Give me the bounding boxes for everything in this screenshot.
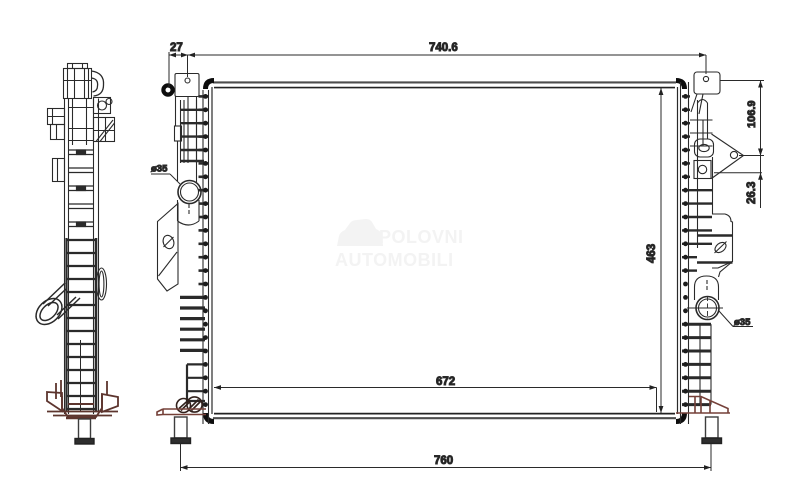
svg-text:ø35: ø35 <box>734 317 751 328</box>
svg-text:ø35: ø35 <box>151 164 168 175</box>
svg-text:POLOVNI: POLOVNI <box>379 227 464 247</box>
svg-text:760: 760 <box>434 455 453 467</box>
svg-text:AUTOMOBILI: AUTOMOBILI <box>335 250 454 270</box>
svg-text:106.9: 106.9 <box>746 100 758 128</box>
svg-text:740.6: 740.6 <box>429 42 458 54</box>
svg-text:27: 27 <box>170 42 183 54</box>
svg-text:463: 463 <box>646 244 658 263</box>
svg-text:26.3: 26.3 <box>746 182 758 204</box>
svg-text:672: 672 <box>436 376 455 388</box>
